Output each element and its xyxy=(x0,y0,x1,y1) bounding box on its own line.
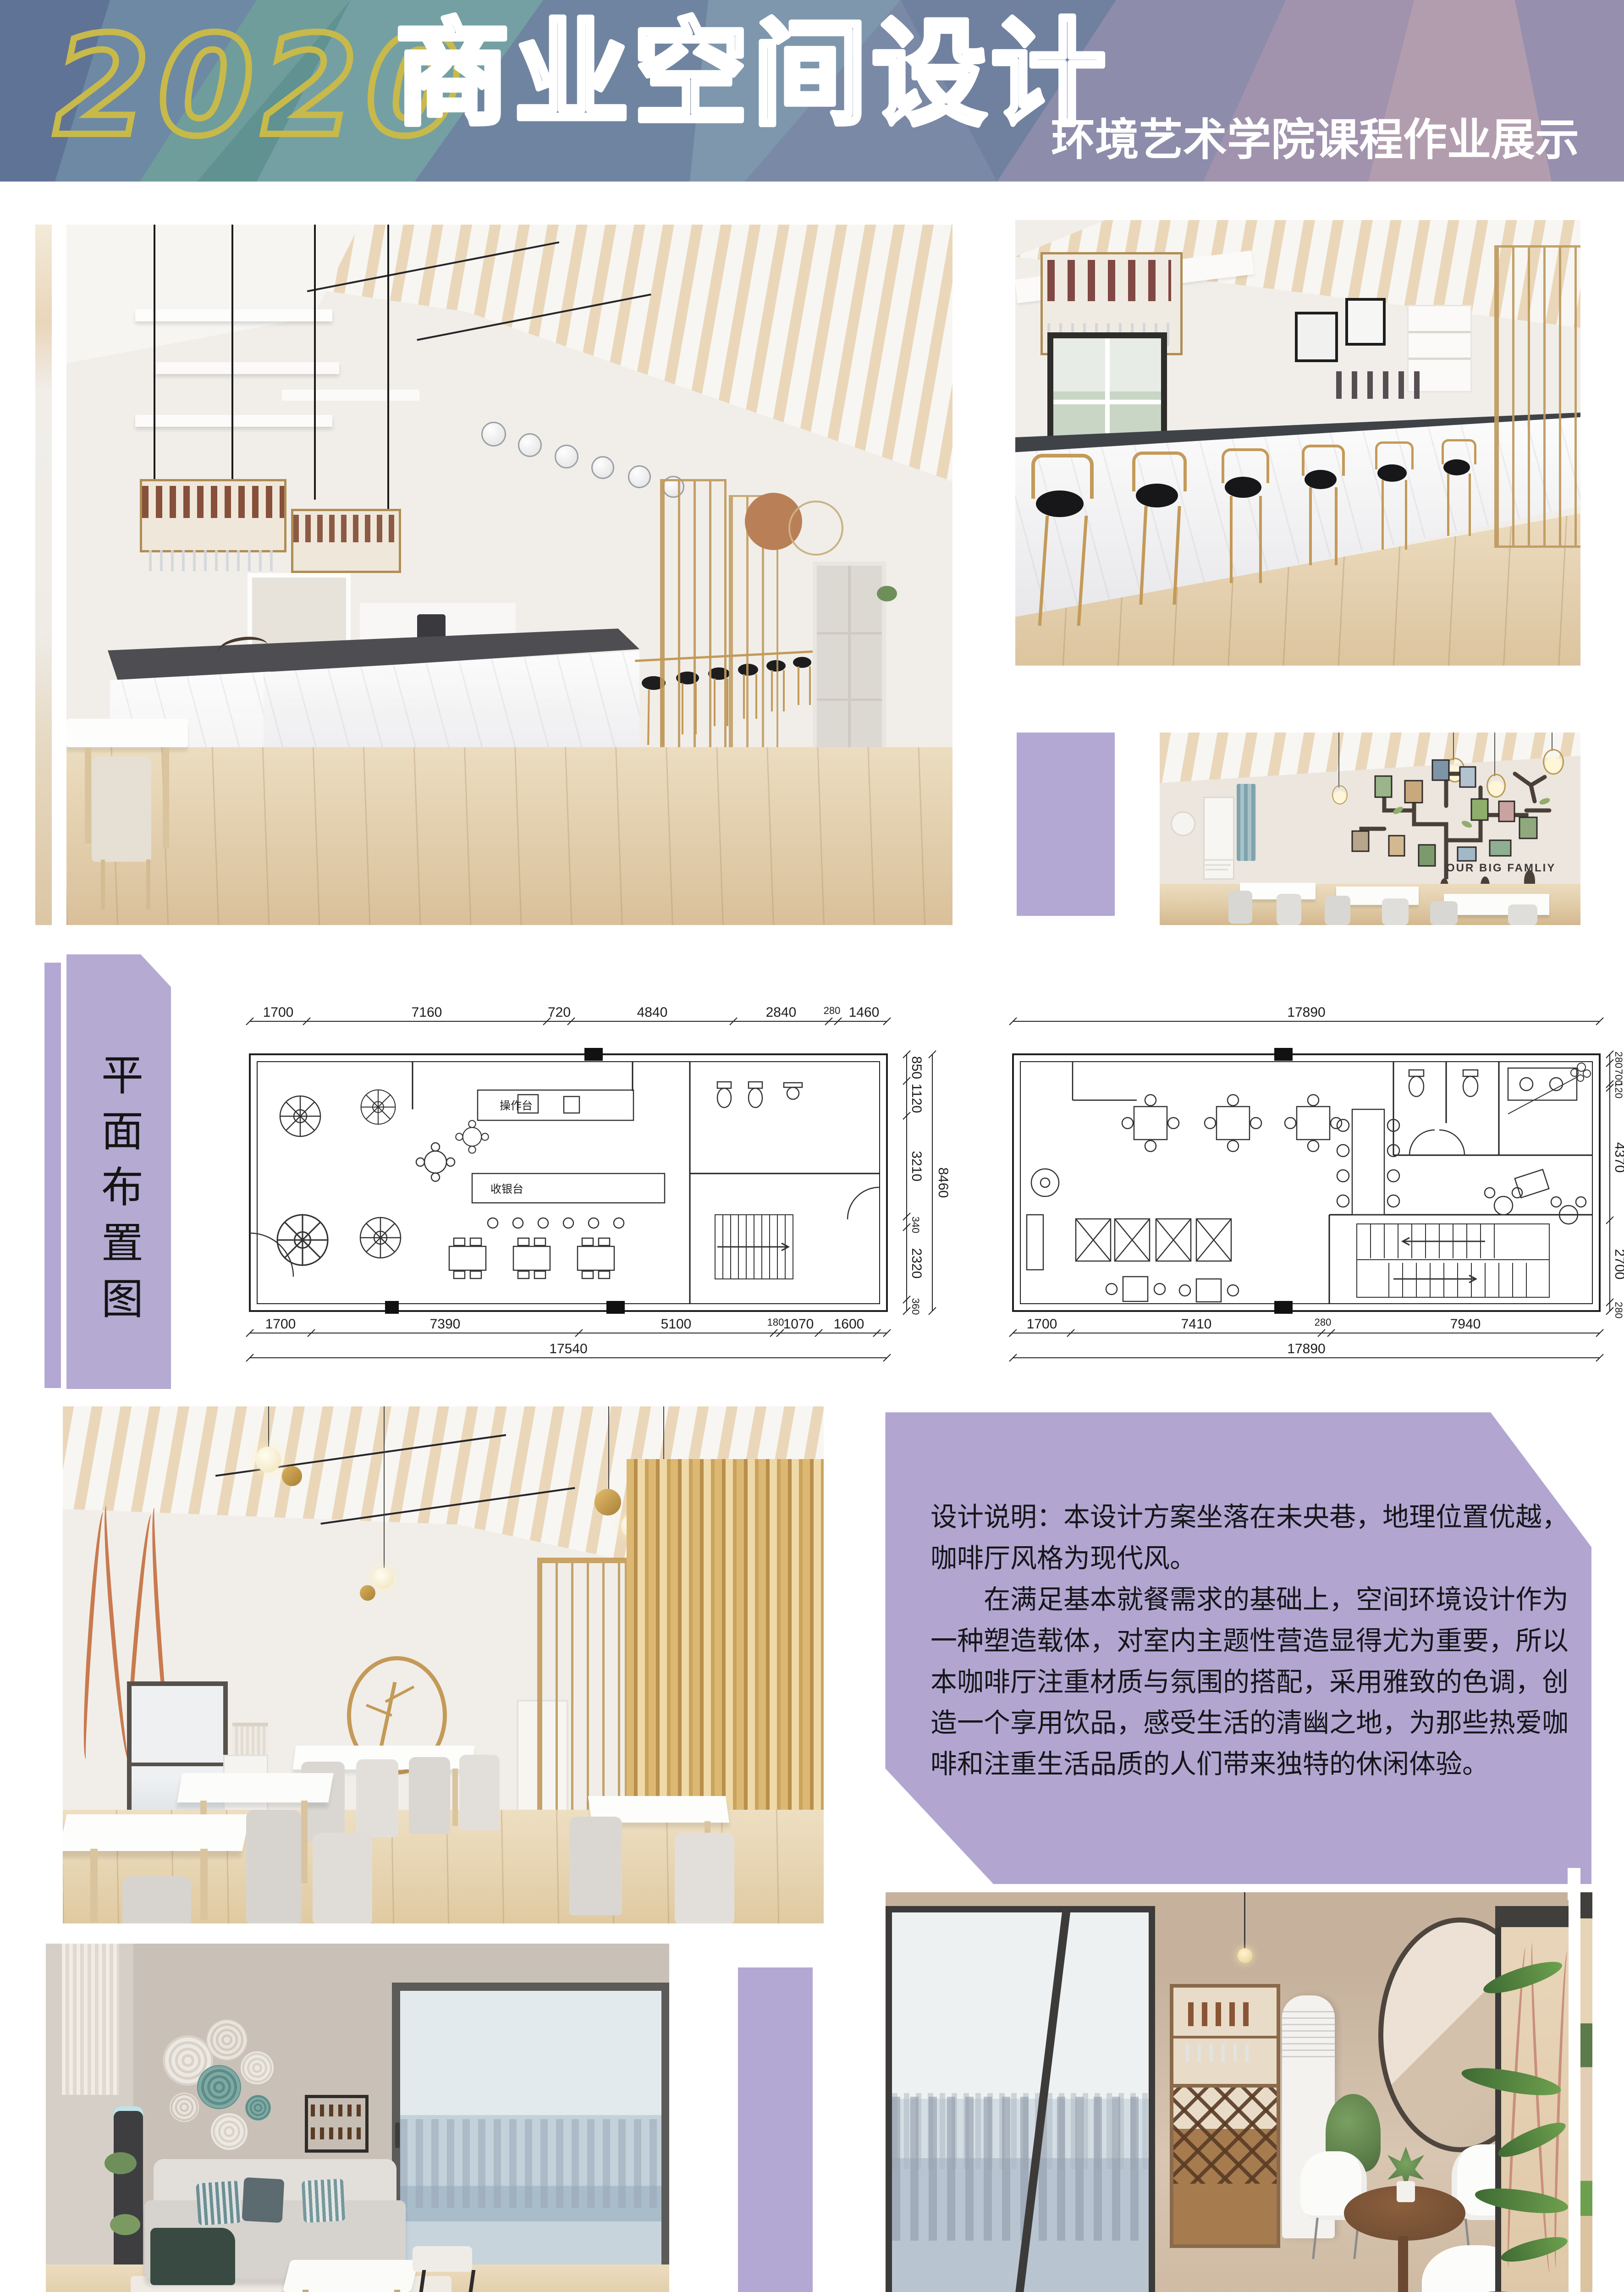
liquor-bottles xyxy=(1336,371,1423,399)
svg-text:1600: 1600 xyxy=(834,1317,864,1332)
gold-wine-rack xyxy=(291,509,401,573)
table-leg xyxy=(394,2290,400,2292)
hanging-stemware xyxy=(149,550,273,571)
svg-text:8460: 8460 xyxy=(936,1168,951,1198)
picture-frame xyxy=(1295,312,1338,362)
wine-rack-art xyxy=(305,2095,369,2153)
svg-text:1700: 1700 xyxy=(1027,1317,1057,1332)
svg-text:720: 720 xyxy=(548,1005,571,1020)
gold-wine-rack xyxy=(140,479,286,552)
svg-text:5100: 5100 xyxy=(661,1317,692,1332)
svg-text:2320: 2320 xyxy=(909,1248,924,1279)
chair xyxy=(1430,901,1458,925)
svg-text:7390: 7390 xyxy=(430,1317,461,1332)
hanging-shelf xyxy=(156,362,339,374)
svg-text:17890: 17890 xyxy=(1287,1341,1325,1356)
bar-stool-seat xyxy=(1305,470,1337,489)
svg-text:1070: 1070 xyxy=(783,1317,814,1332)
chair xyxy=(675,1833,734,1923)
bar-stool-seat xyxy=(1036,490,1084,517)
svg-text:2700: 2700 xyxy=(1612,1249,1624,1280)
svg-text:1120: 1120 xyxy=(909,1084,924,1113)
table-leg xyxy=(301,1801,308,1883)
bar-stool-seat xyxy=(1136,484,1178,507)
photo-family-wall-render: OUR BIG FAMLIY xyxy=(1160,733,1580,925)
chair xyxy=(1325,896,1350,925)
sofa-cushion xyxy=(242,2177,285,2223)
sofa-cushion xyxy=(196,2181,242,2226)
plates-wall-art xyxy=(241,2051,274,2084)
svg-text:4840: 4840 xyxy=(637,1005,668,1020)
bar-stool-legs xyxy=(1038,516,1088,626)
chair xyxy=(356,1759,398,1837)
bar-stool-seat xyxy=(1377,464,1407,482)
chair-legs xyxy=(101,859,150,910)
svg-text:7940: 7940 xyxy=(1450,1317,1481,1332)
svg-text:280: 280 xyxy=(1315,1317,1332,1328)
pendant-cord xyxy=(1244,1892,1245,1951)
pendant-cord xyxy=(384,1406,385,1571)
pendant-lamp xyxy=(595,1489,621,1515)
svg-text:280: 280 xyxy=(1613,1302,1624,1319)
ceiling-slats xyxy=(259,225,952,481)
svg-text:280: 280 xyxy=(1613,1052,1624,1069)
plan-a-walls xyxy=(250,1054,887,1311)
side-stool-legs xyxy=(417,2270,476,2292)
svg-text:7410: 7410 xyxy=(1181,1317,1212,1332)
shelf-rod xyxy=(387,225,389,518)
shelf-rod xyxy=(154,225,155,490)
macrame-hanging xyxy=(62,1944,119,2095)
plant xyxy=(105,2152,137,2174)
header-subtitle: 环境艺术学院课程作业展示 xyxy=(1051,116,1579,165)
window-handle xyxy=(395,2122,400,2148)
svg-text:17540: 17540 xyxy=(549,1341,587,1356)
hanging-stemware xyxy=(1186,2044,1255,2062)
glass-pendant xyxy=(555,445,578,468)
divider-gap xyxy=(1568,1868,1580,1900)
svg-text:2840: 2840 xyxy=(766,1005,797,1020)
svg-text:7160: 7160 xyxy=(412,1005,442,1020)
page-title: 商业空间设计 xyxy=(395,7,1110,141)
svg-text:3210: 3210 xyxy=(909,1151,924,1182)
table-pedestal xyxy=(1398,2236,1408,2292)
plan-a-label-cashier: 收银台 xyxy=(490,1183,523,1196)
dining-table xyxy=(177,1773,333,1802)
svg-text:280: 280 xyxy=(824,1005,841,1016)
bar-stool-legs xyxy=(1230,496,1262,583)
chair xyxy=(409,1757,450,1834)
svg-text:1460: 1460 xyxy=(849,1005,880,1020)
svg-text:1700: 1700 xyxy=(265,1317,296,1332)
plates-wall-art xyxy=(197,2065,241,2109)
partition-screen xyxy=(1494,245,1580,548)
pendant-lamp xyxy=(255,1447,281,1472)
photo-cafe-bar-render xyxy=(66,225,952,925)
pendant-lamp xyxy=(373,1568,394,1589)
table-leg xyxy=(90,1849,98,1922)
chair xyxy=(92,756,151,862)
chair xyxy=(1382,898,1409,925)
chair xyxy=(246,1810,301,1923)
throw-blanket xyxy=(150,2228,235,2285)
picture-frame xyxy=(1345,298,1386,346)
plant xyxy=(110,2214,140,2235)
plan-b-dimensions xyxy=(1009,1018,1613,1361)
coffee-table xyxy=(282,2260,418,2292)
circle-outline-art xyxy=(788,501,843,556)
description-paragraph: 设计说明：本设计方案坐落在未央巷，地理位置优越，咖啡厅风格为现代风。 xyxy=(930,1497,1572,1579)
glass-pendant xyxy=(481,422,506,446)
city-view-window xyxy=(392,1983,669,2292)
dining-table xyxy=(66,719,188,747)
bar-stool-seat xyxy=(1443,459,1470,475)
table-leg xyxy=(163,747,169,848)
pendant-lamp xyxy=(1552,733,1552,751)
chair xyxy=(122,1876,191,1923)
floor-plan-a: 操作台 收银台 1700 7160 720 4840 2840 280 1460… xyxy=(197,958,953,1373)
design-description-text: 设计说明：本设计方案坐落在未央巷，地理位置优越，咖啡厅风格为现代风。 在满足基本… xyxy=(930,1497,1572,1785)
svg-text:4370: 4370 xyxy=(1612,1142,1624,1173)
plan-a-dimensions xyxy=(246,1018,936,1361)
pendant-lamp xyxy=(360,1585,375,1601)
hanging-shelf xyxy=(135,415,332,427)
svg-text:180: 180 xyxy=(767,1317,784,1328)
glass-pendant xyxy=(591,456,614,479)
chair xyxy=(1277,894,1301,925)
curtain xyxy=(1237,784,1256,861)
plan-section-label-panel: 平面布置图 xyxy=(66,954,171,1389)
svg-text:850: 850 xyxy=(909,1056,924,1079)
table-vase xyxy=(1397,2181,1415,2202)
photo-dining-hall-render xyxy=(63,1406,824,1923)
round-wall-shelf xyxy=(1171,811,1195,836)
bar-stool-legs xyxy=(1139,506,1181,605)
hanging-shelf xyxy=(282,390,419,401)
svg-text:360: 360 xyxy=(910,1298,921,1315)
plates-wall-art xyxy=(245,2095,271,2121)
table-leg xyxy=(200,1849,208,1920)
bar-stool-legs xyxy=(1447,474,1471,536)
glass-pendant xyxy=(628,465,651,488)
header-banner: 2020 商业空间设计 环境艺术学院课程作业展示 xyxy=(0,0,1624,182)
bottles xyxy=(1188,2002,1252,2026)
plan-section-label: 平面布置图 xyxy=(88,1053,149,1333)
poster: 2020 商业空间设计 环境艺术学院课程作业展示 xyxy=(0,0,1624,2292)
floor-plan-b: 17890 1700 7410 280 7940 17890 280 700 1… xyxy=(990,958,1624,1373)
chair xyxy=(459,1755,500,1830)
svg-text:340: 340 xyxy=(910,1217,921,1234)
bar-stool-legs xyxy=(798,667,811,705)
shelf-rod xyxy=(314,225,316,500)
city-view-window xyxy=(886,1906,1155,2292)
table-leg xyxy=(85,747,91,843)
hanging-shelf xyxy=(135,309,332,321)
photo-bar-stools-render xyxy=(1015,220,1580,666)
plan-a-furniture: 操作台 收银台 xyxy=(250,1048,880,1314)
table-leg xyxy=(452,1769,458,1826)
photo-balcony-render xyxy=(886,1892,1569,2292)
plates-wall-art xyxy=(211,2113,248,2150)
pendant-cord xyxy=(268,1406,269,1450)
doorway-stairs xyxy=(1203,797,1234,880)
dining-table xyxy=(63,1814,250,1851)
photo-living-room-render xyxy=(46,1944,669,2292)
sofa-cushion xyxy=(302,2179,346,2223)
table-leg xyxy=(303,2290,308,2292)
glass-door-top-beam xyxy=(1495,1906,1569,1927)
shelf-rod xyxy=(231,225,233,509)
bar-stool-seat xyxy=(1225,477,1261,498)
bar-stool-legs xyxy=(1382,480,1407,550)
chair xyxy=(569,1817,622,1915)
plates-wall-art xyxy=(170,2093,199,2122)
svg-text:120: 120 xyxy=(1613,1082,1624,1099)
chair xyxy=(313,1833,372,1923)
plan-a-label-counter: 操作台 xyxy=(500,1100,533,1112)
accent-block xyxy=(1017,733,1115,916)
bar-stool-legs xyxy=(1309,487,1338,565)
chair xyxy=(1508,904,1537,925)
design-description-panel: 设计说明：本设计方案坐落在未央巷，地理位置优越，咖啡厅风格为现代风。 在满足基本… xyxy=(871,1403,1591,1884)
chair xyxy=(1228,891,1252,924)
description-paragraph: 在满足基本就餐需求的基础上，空间环境设计作为一种塑造载体，对室内主题性营造显得尤… xyxy=(930,1579,1572,1785)
svg-text:1700: 1700 xyxy=(263,1005,294,1020)
accent-strip xyxy=(44,963,61,1388)
glass-door xyxy=(813,562,886,774)
svg-text:17890: 17890 xyxy=(1287,1005,1325,1020)
pendant-cord xyxy=(608,1406,609,1493)
side-stool xyxy=(413,2246,472,2272)
family-wall-text: OUR BIG FAMLIY xyxy=(1446,862,1556,875)
partition-screen xyxy=(660,479,727,786)
accent-strip xyxy=(738,1967,813,2292)
balcony-render-sliver xyxy=(1580,1892,1592,2292)
photo-tree-art xyxy=(1329,755,1568,879)
wall-plant xyxy=(877,586,897,601)
glass-pendant xyxy=(518,433,542,457)
pendant-lamp xyxy=(1238,1948,1252,1963)
plan-b-stairs xyxy=(1357,1224,1549,1297)
plan-b-furniture xyxy=(1027,1048,1591,1314)
pendant-lamp xyxy=(282,1466,302,1486)
plan-a-stairs xyxy=(715,1215,793,1279)
cafe-render-sliver xyxy=(35,225,52,925)
plates-wall-art xyxy=(206,2019,248,2061)
plan-b-walls xyxy=(1013,1054,1600,1311)
floor xyxy=(66,747,952,925)
